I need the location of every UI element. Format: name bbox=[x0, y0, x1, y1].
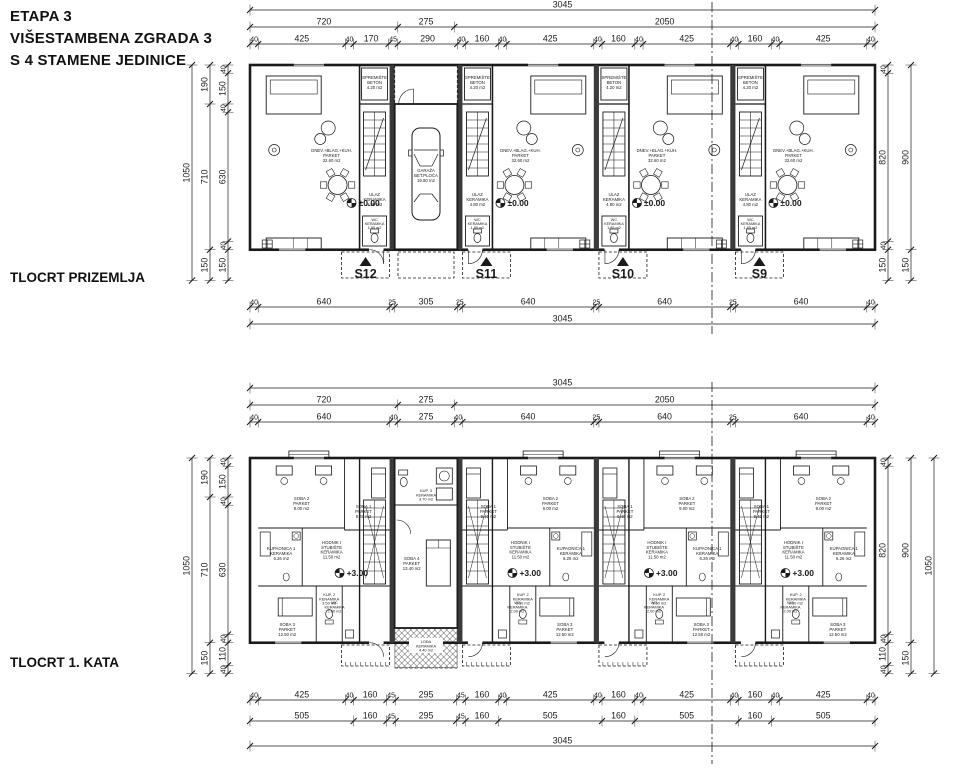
room-label: 6.26 m2 bbox=[273, 556, 289, 561]
dim-text: 40 bbox=[221, 635, 228, 643]
dim-text: 160 bbox=[475, 711, 490, 721]
dim-text: 710 bbox=[200, 562, 210, 577]
room-label: 1.85 m2 bbox=[368, 226, 382, 230]
dim-text: 25 bbox=[729, 415, 737, 422]
dim-text: 900 bbox=[901, 150, 911, 165]
dim-text: 40 bbox=[221, 65, 228, 73]
room-label: 4.20 m2 bbox=[367, 85, 383, 90]
dim-text: 40 bbox=[731, 693, 739, 700]
room-label: 9.00 m2 bbox=[294, 506, 310, 511]
dim-text: 425 bbox=[543, 690, 558, 700]
level-marker-text: +3.00 bbox=[347, 568, 369, 578]
dim-text: 40 bbox=[772, 693, 780, 700]
room-label: 32.60 m2 bbox=[648, 158, 667, 163]
room-label: 32.60 m2 bbox=[323, 158, 342, 163]
dim-text: 40 bbox=[390, 415, 398, 422]
dim-text: 40 bbox=[346, 37, 354, 44]
level-marker-text: ±0.00 bbox=[780, 198, 801, 208]
dim-text: 425 bbox=[816, 690, 831, 700]
dim-text: 45 bbox=[457, 714, 465, 721]
dim-text: 40 bbox=[867, 300, 875, 307]
dim-text: 275 bbox=[419, 395, 434, 405]
room-label: 2.00 m2 bbox=[647, 609, 661, 614]
room-label: 1.85 m2 bbox=[744, 226, 758, 230]
dim-text: 2050 bbox=[655, 395, 675, 405]
room-label: 32.60 m2 bbox=[784, 158, 803, 163]
dim-text: 40 bbox=[867, 37, 875, 44]
room-label: 9.00 m2 bbox=[816, 506, 832, 511]
dim-text: 160 bbox=[748, 690, 763, 700]
dim-text: 45 bbox=[387, 714, 395, 721]
dim-text: 630 bbox=[218, 169, 228, 184]
room-label: 2.00 m2 bbox=[328, 609, 342, 614]
level-marker-text: +3.00 bbox=[519, 568, 541, 578]
dim-text: 305 bbox=[419, 297, 434, 307]
dim-text: 45 bbox=[389, 37, 397, 44]
dim-text: 40 bbox=[635, 693, 643, 700]
dim-text: 160 bbox=[611, 690, 626, 700]
dim-text: 150 bbox=[878, 258, 888, 273]
dim-text: 820 bbox=[878, 150, 888, 165]
dim-text: 275 bbox=[419, 17, 434, 27]
dim-text: 505 bbox=[679, 711, 694, 721]
dim-text: 150 bbox=[200, 651, 210, 666]
dim-text: 290 bbox=[420, 34, 435, 44]
dim-text: 110 bbox=[218, 647, 228, 661]
room-label: 4.20 m2 bbox=[743, 85, 759, 90]
dim-text: 640 bbox=[657, 412, 672, 422]
room-label: 11.50 m2 bbox=[512, 554, 530, 559]
room-label: 4.20 m2 bbox=[470, 85, 486, 90]
dim-text: 720 bbox=[317, 17, 332, 27]
dim-text: 45 bbox=[387, 693, 395, 700]
level-marker-text: +3.00 bbox=[792, 568, 814, 578]
unit-label: S10 bbox=[612, 267, 634, 281]
dim-text: 190 bbox=[200, 470, 210, 485]
dim-text: 40 bbox=[221, 242, 228, 250]
dim-text: 25 bbox=[388, 300, 396, 307]
dim-text: 40 bbox=[881, 242, 888, 250]
dim-text: 40 bbox=[772, 37, 780, 44]
dim-text: 720 bbox=[317, 395, 332, 405]
dim-text: 640 bbox=[657, 297, 672, 307]
room-label: 4.20 m2 bbox=[606, 85, 622, 90]
room-label: 12.50 m2 bbox=[278, 632, 297, 637]
room-label: 11.50 m2 bbox=[785, 554, 803, 559]
room-label: 9.00 m2 bbox=[543, 506, 559, 511]
dim-text: 160 bbox=[363, 711, 378, 721]
dim-text: 640 bbox=[521, 297, 536, 307]
dim-text: 3045 bbox=[553, 736, 573, 746]
dim-text: 160 bbox=[363, 690, 378, 700]
dim-text: 425 bbox=[543, 34, 558, 44]
dim-text: 40 bbox=[346, 693, 354, 700]
dim-text: 160 bbox=[475, 34, 490, 44]
dim-text: 40 bbox=[881, 65, 888, 73]
room-label: 11.50 m2 bbox=[648, 554, 666, 559]
dim-text: 150 bbox=[218, 474, 228, 489]
dim-text: 640 bbox=[317, 297, 332, 307]
dim-text: 40 bbox=[881, 635, 888, 643]
dim-text: 40 bbox=[458, 37, 466, 44]
dim-text: 150 bbox=[901, 651, 911, 666]
dim-text: 3045 bbox=[553, 314, 573, 324]
dim-text: 275 bbox=[419, 412, 434, 422]
dim-text: 425 bbox=[294, 690, 309, 700]
dim-text: 160 bbox=[611, 34, 626, 44]
dim-text: 150 bbox=[218, 258, 228, 273]
dim-text: 295 bbox=[419, 711, 434, 721]
room-label: 12.50 m2 bbox=[556, 632, 575, 637]
dim-text: 1050 bbox=[182, 556, 192, 576]
dim-text: 25 bbox=[592, 300, 600, 307]
drawing-sheet: ETAPA 3 VIŠESTAMBENA ZGRADA 3 S 4 STAMEN… bbox=[0, 0, 966, 768]
dim-text: 160 bbox=[611, 711, 626, 721]
room-label: 9.00 m2 bbox=[679, 506, 695, 511]
room-label: 12.50 m2 bbox=[829, 632, 848, 637]
room-label: 4.40 m2 bbox=[419, 648, 433, 653]
dim-text: 150 bbox=[901, 258, 911, 273]
room-label: 12.50 m2 bbox=[692, 632, 711, 637]
dim-text: 40 bbox=[454, 415, 462, 422]
dim-text: 630 bbox=[218, 562, 228, 577]
dim-text: 710 bbox=[200, 169, 210, 184]
dim-text: 40 bbox=[594, 37, 602, 44]
dim-text: 40 bbox=[881, 665, 888, 673]
room-label: 13.40 m2 bbox=[403, 566, 422, 571]
dim-text: 505 bbox=[816, 711, 831, 721]
dim-text: 425 bbox=[679, 34, 694, 44]
dim-text: 1050 bbox=[182, 163, 192, 183]
room-label: 2.00 m2 bbox=[783, 609, 797, 614]
dim-text: 40 bbox=[250, 300, 258, 307]
dim-text: 150 bbox=[218, 81, 228, 96]
dim-text: 40 bbox=[635, 37, 643, 44]
dim-text: 150 bbox=[200, 258, 210, 273]
room-label: 2.00 m2 bbox=[510, 609, 524, 614]
room-label: 32.60 m2 bbox=[511, 158, 530, 163]
room-label: 11.50 m2 bbox=[323, 554, 341, 559]
room-label: 6.26 m2 bbox=[836, 556, 852, 561]
dim-text: 640 bbox=[521, 412, 536, 422]
room-label: 6.26 m2 bbox=[700, 556, 716, 561]
room-label: 1.85 m2 bbox=[607, 226, 621, 230]
dim-text: 640 bbox=[317, 412, 332, 422]
dim-text: 40 bbox=[221, 497, 228, 505]
dim-text: 40 bbox=[221, 458, 228, 466]
dim-text: 25 bbox=[729, 300, 737, 307]
room-label: 4.80 m2 bbox=[470, 202, 486, 207]
dim-text: 40 bbox=[731, 37, 739, 44]
dim-text: 160 bbox=[748, 711, 763, 721]
room-label: 4.80 m2 bbox=[606, 202, 622, 207]
level-marker-text: ±0.00 bbox=[507, 198, 528, 208]
room-label: 19.80 m2 bbox=[417, 178, 436, 183]
dim-text: 40 bbox=[250, 37, 258, 44]
dim-text: 40 bbox=[250, 693, 258, 700]
dim-text: 40 bbox=[867, 693, 875, 700]
dim-text: 640 bbox=[794, 412, 809, 422]
dim-text: 425 bbox=[294, 34, 309, 44]
level-marker-text: ±0.00 bbox=[644, 198, 665, 208]
dim-text: 1050 bbox=[924, 556, 934, 576]
level-marker-text: +3.00 bbox=[656, 568, 678, 578]
room-label: 3.70 m2 bbox=[419, 497, 433, 502]
room-label: 1.85 m2 bbox=[471, 226, 485, 230]
unit-label: S11 bbox=[476, 267, 498, 281]
dim-text: 900 bbox=[901, 543, 911, 558]
dim-text: 640 bbox=[794, 297, 809, 307]
dim-text: 160 bbox=[748, 34, 763, 44]
dim-text: 295 bbox=[419, 690, 434, 700]
unit-label: S9 bbox=[752, 267, 767, 281]
dim-text: 40 bbox=[499, 37, 507, 44]
dim-text: 40 bbox=[221, 104, 228, 112]
dim-text: 425 bbox=[816, 34, 831, 44]
dim-text: 40 bbox=[499, 693, 507, 700]
dim-text: 505 bbox=[294, 711, 309, 721]
unit-label: S12 bbox=[354, 267, 376, 281]
dim-text: 40 bbox=[881, 458, 888, 466]
dim-text: 820 bbox=[878, 543, 888, 558]
dim-text: 3045 bbox=[553, 378, 573, 388]
dim-text: 170 bbox=[364, 34, 379, 44]
dim-text: 3045 bbox=[553, 0, 573, 10]
room-label: 6.26 m2 bbox=[563, 556, 579, 561]
dim-text: 25 bbox=[592, 415, 600, 422]
room-label: 4.80 m2 bbox=[743, 202, 759, 207]
dim-text: 190 bbox=[200, 77, 210, 92]
dim-text: 40 bbox=[594, 693, 602, 700]
dim-text: 425 bbox=[679, 690, 694, 700]
dim-text: 40 bbox=[250, 415, 258, 422]
dim-text: 40 bbox=[867, 415, 875, 422]
dim-text: 40 bbox=[221, 665, 228, 673]
dim-text: 160 bbox=[475, 690, 490, 700]
dim-text: 505 bbox=[543, 711, 558, 721]
dim-text: 110 bbox=[878, 647, 888, 661]
level-marker-text: ±0.00 bbox=[359, 198, 380, 208]
floor-plans-drawing: 3045720275205040425401704529040160404254… bbox=[0, 0, 966, 768]
dim-text: 45 bbox=[457, 693, 465, 700]
dim-text: 25 bbox=[456, 300, 464, 307]
dim-text: 2050 bbox=[655, 17, 675, 27]
